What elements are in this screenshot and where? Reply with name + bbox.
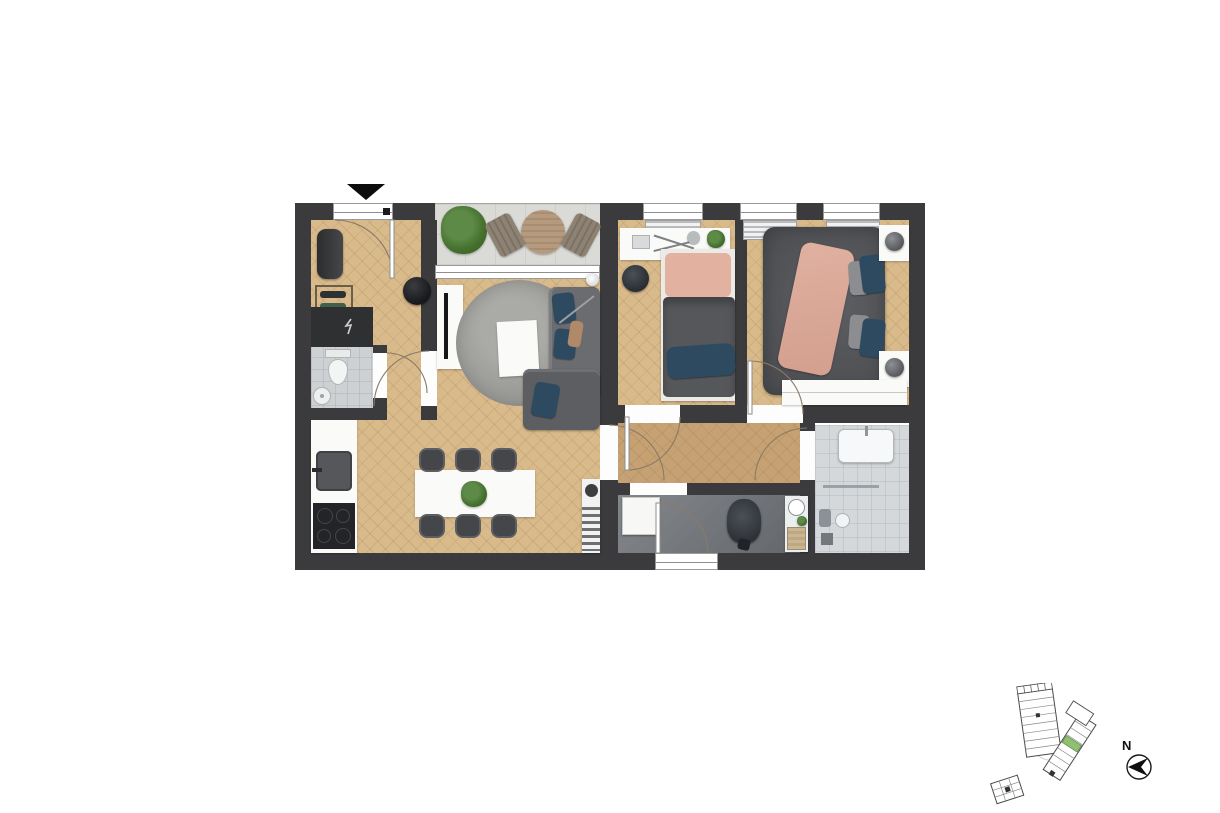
floor-lamp-head xyxy=(586,273,599,286)
dining-side-console xyxy=(582,479,600,553)
wall-bottom-2 xyxy=(718,553,909,570)
burner-2 xyxy=(336,509,350,523)
site-building-small xyxy=(991,775,1024,804)
small-bedroom-window xyxy=(643,203,703,220)
desk-stool xyxy=(622,265,649,292)
tv xyxy=(444,293,448,359)
nightstand-lamp-top xyxy=(885,232,904,251)
dining-chair-2 xyxy=(455,448,481,472)
wall-right xyxy=(909,203,925,570)
door-opening-laundry xyxy=(630,483,687,495)
burner-3 xyxy=(317,529,331,543)
wall-top-3 xyxy=(618,203,643,220)
console-appliance xyxy=(585,484,598,497)
wc-basin-drain xyxy=(320,394,324,398)
dining-chair-1 xyxy=(419,448,445,472)
wall-top-6 xyxy=(880,203,909,220)
door-opening-wc xyxy=(373,353,387,398)
burner-4 xyxy=(335,528,351,544)
electrical-cabinet xyxy=(311,307,373,347)
towel-rail xyxy=(823,485,879,488)
wardrobe-split-line xyxy=(782,392,907,393)
floor-drain xyxy=(821,533,833,545)
vacuum-cleaner-body xyxy=(727,499,761,543)
dining-chair-4 xyxy=(419,514,445,538)
wall-corridor-top-3 xyxy=(803,405,909,423)
hall-bench xyxy=(317,229,343,279)
shower-drain-round xyxy=(835,513,850,528)
door-opening-shower xyxy=(800,431,815,480)
balcony-table xyxy=(521,210,565,254)
door-opening-small-bedroom xyxy=(625,405,680,423)
site-building-wing-a xyxy=(1017,683,1062,757)
master-window-1 xyxy=(740,203,797,220)
apartment-floor-plan xyxy=(295,203,925,570)
single-bed-pillow xyxy=(665,253,731,297)
entrance-arrow-icon xyxy=(347,184,385,200)
wall-bedroom-divider xyxy=(735,220,747,405)
kitchen-faucet xyxy=(312,468,322,472)
dining-chair-5 xyxy=(455,514,481,538)
wall-corridor-laundry-2 xyxy=(687,483,800,495)
laundry-shelf xyxy=(785,496,808,552)
desk-lamp-shade xyxy=(687,231,700,244)
wall-shower-left-top xyxy=(800,423,815,431)
wall-hall-living-stub xyxy=(421,406,437,420)
wall-dining-laundry xyxy=(600,480,618,553)
laundry-exterior-door xyxy=(655,553,718,570)
burner-1 xyxy=(317,508,333,524)
shoes-row-1 xyxy=(320,291,346,298)
hall-pouf xyxy=(403,277,431,305)
toilet-tank xyxy=(325,349,351,358)
lightning-icon xyxy=(343,318,357,336)
shower-fitting xyxy=(819,509,831,527)
single-bed-throw xyxy=(666,343,736,380)
door-opening-master-bedroom xyxy=(747,405,803,423)
wall-wc-bottom xyxy=(311,408,387,420)
north-compass: N xyxy=(1120,738,1164,790)
laundry-plant xyxy=(797,516,807,526)
kitchen-sink xyxy=(316,451,352,491)
wall-corridor-top-2 xyxy=(680,405,747,423)
cooktop xyxy=(313,503,355,549)
wc-washbasin xyxy=(313,387,331,405)
dining-chair-3 xyxy=(491,448,517,472)
wall-top-5 xyxy=(797,203,823,220)
wall-wc-right-top xyxy=(373,345,387,353)
site-key-plan xyxy=(985,683,1125,808)
desk-plant xyxy=(707,230,725,248)
nightstand-lamp-bottom xyxy=(885,358,904,377)
laundry-basin xyxy=(788,499,805,516)
laptop xyxy=(632,235,650,249)
wall-corridor-top-1 xyxy=(618,405,625,423)
door-opening-dining-corridor xyxy=(600,425,618,480)
entrance-door-hinge xyxy=(383,208,390,215)
balcony-sliding-window xyxy=(435,265,600,279)
master-window-2 xyxy=(823,203,880,220)
balcony-plant xyxy=(441,206,487,254)
dining-chair-6 xyxy=(491,514,517,538)
wall-top-4 xyxy=(703,203,740,220)
wall-bottom-1 xyxy=(295,553,655,570)
north-arrow-icon xyxy=(1120,750,1160,786)
laundry-cabinet xyxy=(622,497,660,535)
floor-plan-page: { "compass": { "label": "N" }, "palette"… xyxy=(0,0,1220,813)
wall-corridor-laundry-1 xyxy=(618,483,630,495)
dining-plant-centerpiece xyxy=(461,481,487,507)
door-opening-hall-living xyxy=(421,351,437,406)
shower-washbasin xyxy=(838,429,894,463)
wall-left xyxy=(295,203,311,570)
basin-faucet xyxy=(865,426,868,436)
wall-living-bedroom xyxy=(600,203,618,425)
master-wardrobe xyxy=(782,380,907,405)
corridor-wood-floor xyxy=(618,423,800,483)
wall-top-1 xyxy=(295,203,333,220)
laundry-basket xyxy=(787,527,806,550)
